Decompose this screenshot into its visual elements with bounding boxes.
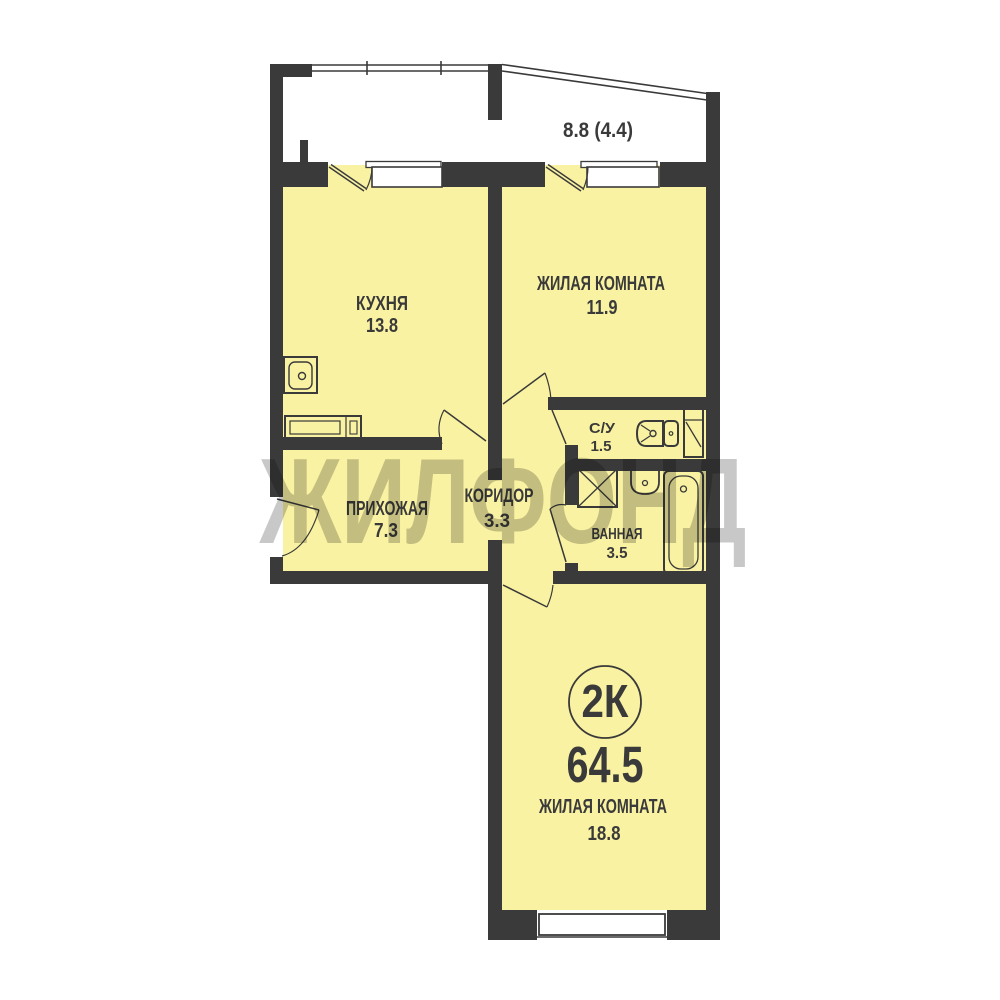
balcony-area-label: 8.8 (4.4) (563, 119, 633, 142)
window-frame (587, 167, 659, 187)
living-bottom-name-label: ЖИЛАЯ КОМНАТА (538, 796, 667, 818)
wall-segment (553, 571, 720, 584)
kitchen-area-label: 13.8 (366, 315, 398, 337)
wall-segment (270, 571, 502, 584)
window-living-bottom (535, 910, 669, 940)
living-top-name-label: ЖИЛАЯ КОМНАТА (536, 273, 665, 295)
total-area-label: 64.5 (567, 736, 644, 793)
window-living-top (581, 162, 659, 188)
window-kitchen (366, 162, 442, 188)
living-top-area-label: 11.9 (587, 297, 618, 319)
wall-segment (488, 540, 502, 940)
wall-segment (660, 162, 706, 187)
wall-segment (548, 397, 706, 410)
wall-segment (667, 910, 720, 940)
glazing-line (502, 65, 707, 94)
window-frame (539, 914, 665, 935)
glazing-line (502, 71, 707, 100)
balcony-glazing (312, 61, 707, 100)
watermark-text: ЖИЛФОНД (259, 433, 747, 569)
floorplan-svg: 8.8 (4.4) КУХНЯ 13.8 ЖИЛАЯ КОМНАТА 11.9 … (0, 0, 1000, 1000)
window-frame (372, 167, 442, 187)
type-badge-label: 2К (582, 675, 630, 727)
living-bottom-area-label: 18.8 (588, 823, 621, 845)
balcony-pillar (488, 64, 502, 120)
wall-segment (488, 910, 537, 940)
floorplan-page: 8.8 (4.4) КУХНЯ 13.8 ЖИЛАЯ КОМНАТА 11.9 … (0, 0, 1000, 1000)
wall-segment (300, 140, 308, 164)
wall-segment (270, 162, 328, 187)
kitchen-name-label: КУХНЯ (356, 293, 408, 315)
